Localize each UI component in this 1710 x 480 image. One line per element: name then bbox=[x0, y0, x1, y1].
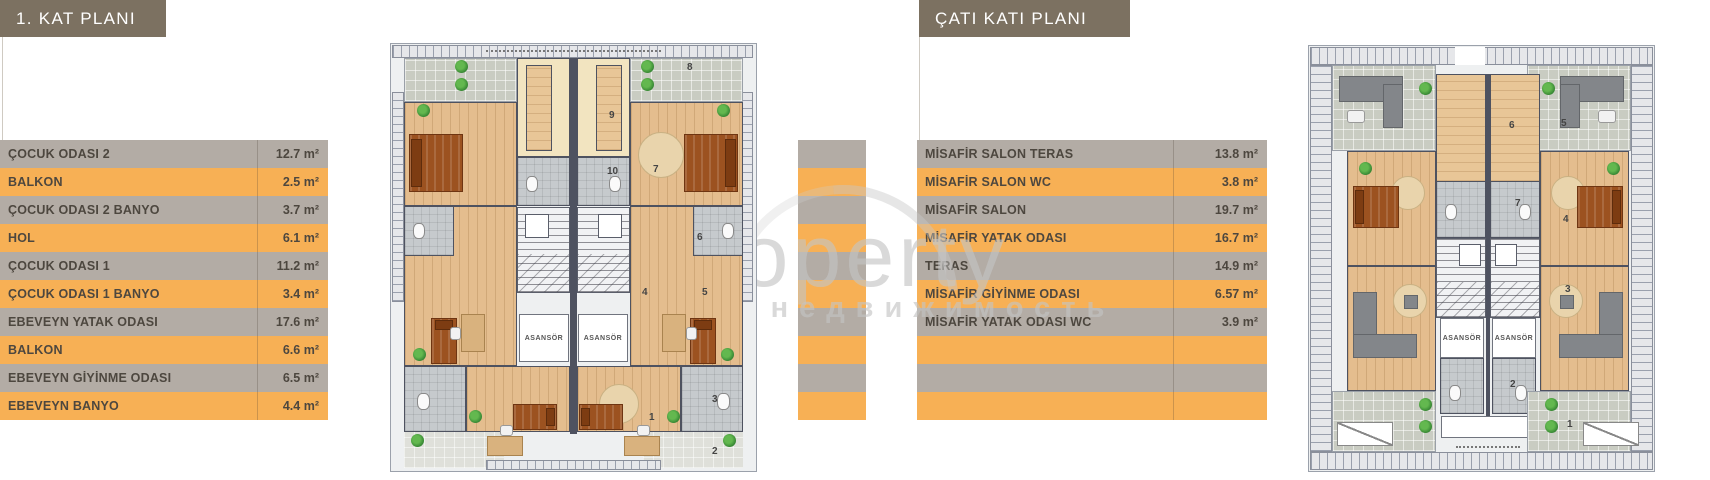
side-table bbox=[1347, 110, 1365, 123]
chair bbox=[637, 425, 650, 436]
plant bbox=[1419, 398, 1432, 411]
room-number: 5 bbox=[1561, 118, 1567, 129]
elevator: ASANSÖR bbox=[1492, 318, 1536, 358]
elevator-label: ASANSÖR bbox=[584, 335, 623, 342]
desk bbox=[662, 314, 686, 352]
room-number: 1 bbox=[649, 412, 655, 423]
room-number: 8 bbox=[687, 62, 693, 73]
bed bbox=[513, 404, 557, 430]
room-label: ÇOCUK ODASI 1 BANYO bbox=[0, 280, 257, 308]
toilet bbox=[413, 223, 425, 239]
room-number: 2 bbox=[1510, 379, 1516, 390]
plant bbox=[413, 348, 426, 361]
room-area bbox=[1173, 392, 1267, 420]
toilet bbox=[722, 223, 734, 239]
right-plan-title: ÇATI KATI PLANI bbox=[919, 0, 1130, 37]
room-area: 11.2 m² bbox=[257, 252, 328, 280]
room-area: 16.7 m² bbox=[1173, 224, 1267, 252]
plant bbox=[721, 348, 734, 361]
roof-corner bbox=[1583, 422, 1639, 446]
plant bbox=[641, 78, 654, 91]
wood-strip bbox=[526, 65, 552, 151]
table-row: EBEVEYN YATAK ODASI17.6 m² bbox=[0, 308, 328, 336]
roof-edge-right bbox=[1631, 65, 1653, 452]
room-label: EBEVEYN YATAK ODASI bbox=[0, 308, 257, 336]
bathroom bbox=[404, 366, 466, 432]
stair-landing bbox=[1495, 244, 1517, 266]
room-number: 9 bbox=[609, 110, 615, 121]
hall-room bbox=[1490, 74, 1540, 182]
room-label: ÇOCUK ODASI 1 bbox=[0, 252, 257, 280]
cushion bbox=[1404, 295, 1418, 309]
table-row: MİSAFİR SALON WC3.8 m² bbox=[917, 168, 1267, 196]
elevator-label: ASANSÖR bbox=[1495, 335, 1534, 342]
plant bbox=[723, 434, 736, 447]
balcony-rail-left bbox=[392, 92, 404, 302]
plant bbox=[641, 60, 654, 73]
left-title-connector-line bbox=[2, 37, 3, 140]
room-label bbox=[917, 336, 1173, 364]
pillow bbox=[1612, 190, 1621, 224]
stair-landing bbox=[525, 214, 549, 238]
rug bbox=[638, 132, 684, 178]
room-number: 6 bbox=[1509, 120, 1515, 131]
room-area: 6.5 m² bbox=[257, 364, 328, 392]
bed bbox=[409, 134, 463, 192]
single-bed bbox=[431, 318, 457, 364]
right-plan-title-label: ÇATI KATI PLANI bbox=[935, 9, 1087, 29]
pillow bbox=[411, 139, 422, 187]
sofa bbox=[1559, 334, 1623, 358]
bed bbox=[1353, 186, 1399, 228]
room-area: 6.57 m² bbox=[1173, 280, 1267, 308]
plant bbox=[411, 434, 424, 447]
room-number: 1 bbox=[1567, 419, 1573, 430]
room-label: EBEVEYN BANYO bbox=[0, 392, 257, 420]
bathroom bbox=[693, 206, 743, 256]
room-area: 6.6 m² bbox=[257, 336, 328, 364]
room-label: EBEVEYN GİYİNME ODASI bbox=[0, 364, 257, 392]
plant bbox=[417, 104, 430, 117]
room-label bbox=[917, 364, 1173, 392]
room-label: ÇOCUK ODASI 2 bbox=[0, 140, 257, 168]
pillow bbox=[725, 139, 736, 187]
elevator: ASANSÖR bbox=[519, 314, 569, 362]
chair bbox=[450, 327, 461, 340]
toilet bbox=[717, 393, 730, 410]
room-area: 19.7 m² bbox=[1173, 196, 1267, 224]
elevator: ASANSÖR bbox=[578, 314, 628, 362]
dotted-line bbox=[1456, 446, 1520, 448]
table-row: ÇOCUK ODASI 2 BANYO3.7 m² bbox=[0, 196, 328, 224]
room-area: 3.7 m² bbox=[257, 196, 328, 224]
bed bbox=[579, 404, 623, 430]
room-number: 10 bbox=[607, 166, 618, 177]
room-number: 5 bbox=[702, 287, 708, 298]
chair bbox=[686, 327, 697, 340]
bathroom bbox=[1436, 181, 1486, 238]
toilet bbox=[1515, 385, 1527, 401]
room-number: 6 bbox=[697, 232, 703, 243]
room-area bbox=[1173, 336, 1267, 364]
table-row: EBEVEYN GİYİNME ODASI6.5 m² bbox=[0, 364, 328, 392]
bathroom bbox=[1440, 358, 1484, 414]
hatch-border-bottom bbox=[486, 460, 661, 470]
room-area bbox=[1173, 364, 1267, 392]
bathroom bbox=[404, 206, 454, 256]
hatch-border-bottom bbox=[1310, 452, 1653, 470]
toilet bbox=[609, 176, 621, 192]
plant bbox=[1607, 162, 1620, 175]
hall-room bbox=[577, 58, 630, 157]
room-label: BALKON bbox=[0, 336, 257, 364]
table-row: ÇOCUK ODASI 1 BANYO3.4 m² bbox=[0, 280, 328, 308]
room-area: 2.5 m² bbox=[257, 168, 328, 196]
room-area: 13.8 m² bbox=[1173, 140, 1267, 168]
room-label: MİSAFİR SALON WC bbox=[917, 168, 1173, 196]
wood-strip bbox=[596, 65, 622, 151]
toilet bbox=[1445, 204, 1457, 220]
room-area: 3.8 m² bbox=[1173, 168, 1267, 196]
room-area: 14.9 m² bbox=[1173, 252, 1267, 280]
room-label: ÇOCUK ODASI 2 BANYO bbox=[0, 196, 257, 224]
plant bbox=[1419, 420, 1432, 433]
bathroom bbox=[1490, 181, 1540, 238]
side-table bbox=[1598, 110, 1616, 123]
room-label: MİSAFİR SALON TERAS bbox=[917, 140, 1173, 168]
hall-room bbox=[1436, 74, 1486, 182]
room-area: 17.6 m² bbox=[257, 308, 328, 336]
room-number: 4 bbox=[1563, 214, 1569, 225]
utility-box bbox=[1441, 416, 1535, 438]
left-plan-title-label: 1. KAT PLANI bbox=[16, 9, 136, 29]
bathroom bbox=[577, 157, 630, 206]
plant bbox=[717, 104, 730, 117]
plant bbox=[1545, 420, 1558, 433]
plant bbox=[667, 410, 680, 423]
table-row bbox=[917, 336, 1267, 364]
roof-floor-plan: ASANSÖR ASANSÖR bbox=[1308, 45, 1655, 472]
bathroom bbox=[517, 157, 570, 206]
elevator-label: ASANSÖR bbox=[525, 335, 564, 342]
first-floor-plan: ASANSÖR ASANSÖR bbox=[390, 43, 757, 472]
page-canvas: tProperty tProperty ная недвижимость ная… bbox=[0, 0, 1710, 480]
pillow bbox=[581, 408, 590, 426]
table-row: EBEVEYN BANYO4.4 m² bbox=[0, 392, 328, 420]
table-row: ÇOCUK ODASI 111.2 m² bbox=[0, 252, 328, 280]
room-number: 3 bbox=[1565, 284, 1571, 295]
room-area: 3.4 m² bbox=[257, 280, 328, 308]
single-bed bbox=[690, 318, 716, 364]
plant bbox=[469, 410, 482, 423]
chair bbox=[500, 425, 513, 436]
room-number: 3 bbox=[712, 394, 718, 405]
dotted-line bbox=[486, 50, 661, 52]
room-area: 3.9 m² bbox=[1173, 308, 1267, 336]
room-label: BALKON bbox=[0, 168, 257, 196]
room-label: HOL bbox=[0, 224, 257, 252]
roof-corner bbox=[1337, 422, 1393, 446]
plant bbox=[455, 78, 468, 91]
table-row bbox=[917, 364, 1267, 392]
round-table bbox=[1393, 284, 1427, 318]
bed bbox=[1577, 186, 1623, 228]
toilet bbox=[526, 176, 538, 192]
center-wall bbox=[570, 58, 577, 434]
room-number: 7 bbox=[653, 164, 659, 175]
sofa bbox=[1383, 84, 1403, 128]
hall-room bbox=[517, 58, 570, 157]
room-number: 4 bbox=[642, 287, 648, 298]
sofa bbox=[1353, 334, 1417, 358]
room-number: 7 bbox=[1515, 198, 1521, 209]
room-area: 12.7 m² bbox=[257, 140, 328, 168]
desk bbox=[487, 436, 523, 456]
plant bbox=[1359, 162, 1372, 175]
stair-landing bbox=[598, 214, 622, 238]
table-row bbox=[917, 392, 1267, 420]
plant bbox=[1545, 398, 1558, 411]
table-row: ÇOCUK ODASI 212.7 m² bbox=[0, 140, 328, 168]
hatch-gap bbox=[1455, 47, 1485, 65]
room-number: 2 bbox=[712, 446, 718, 457]
plant bbox=[455, 60, 468, 73]
elevator: ASANSÖR bbox=[1440, 318, 1484, 358]
plant bbox=[1419, 82, 1432, 95]
bed bbox=[684, 134, 738, 192]
stair-landing bbox=[1459, 244, 1481, 266]
desk bbox=[624, 436, 660, 456]
table-row: MİSAFİR SALON TERAS13.8 m² bbox=[917, 140, 1267, 168]
elevator-label: ASANSÖR bbox=[1443, 335, 1482, 342]
room-area: 4.4 m² bbox=[257, 392, 328, 420]
room-label bbox=[917, 392, 1173, 420]
table-row: BALKON2.5 m² bbox=[0, 168, 328, 196]
pillow bbox=[546, 408, 555, 426]
toilet bbox=[1449, 385, 1461, 401]
plant bbox=[1542, 82, 1555, 95]
roof-edge-left bbox=[1310, 65, 1332, 452]
left-area-table: ÇOCUK ODASI 212.7 m² BALKON2.5 m² ÇOCUK … bbox=[0, 140, 328, 420]
table-row: BALKON6.6 m² bbox=[0, 336, 328, 364]
room-area: 6.1 m² bbox=[257, 224, 328, 252]
table-row: HOL6.1 m² bbox=[0, 224, 328, 252]
right-title-connector-line bbox=[919, 37, 920, 140]
desk bbox=[461, 314, 485, 352]
cushion bbox=[1560, 295, 1574, 309]
left-plan-title: 1. KAT PLANI bbox=[0, 0, 166, 37]
toilet bbox=[417, 393, 430, 410]
pillow bbox=[1355, 190, 1364, 224]
